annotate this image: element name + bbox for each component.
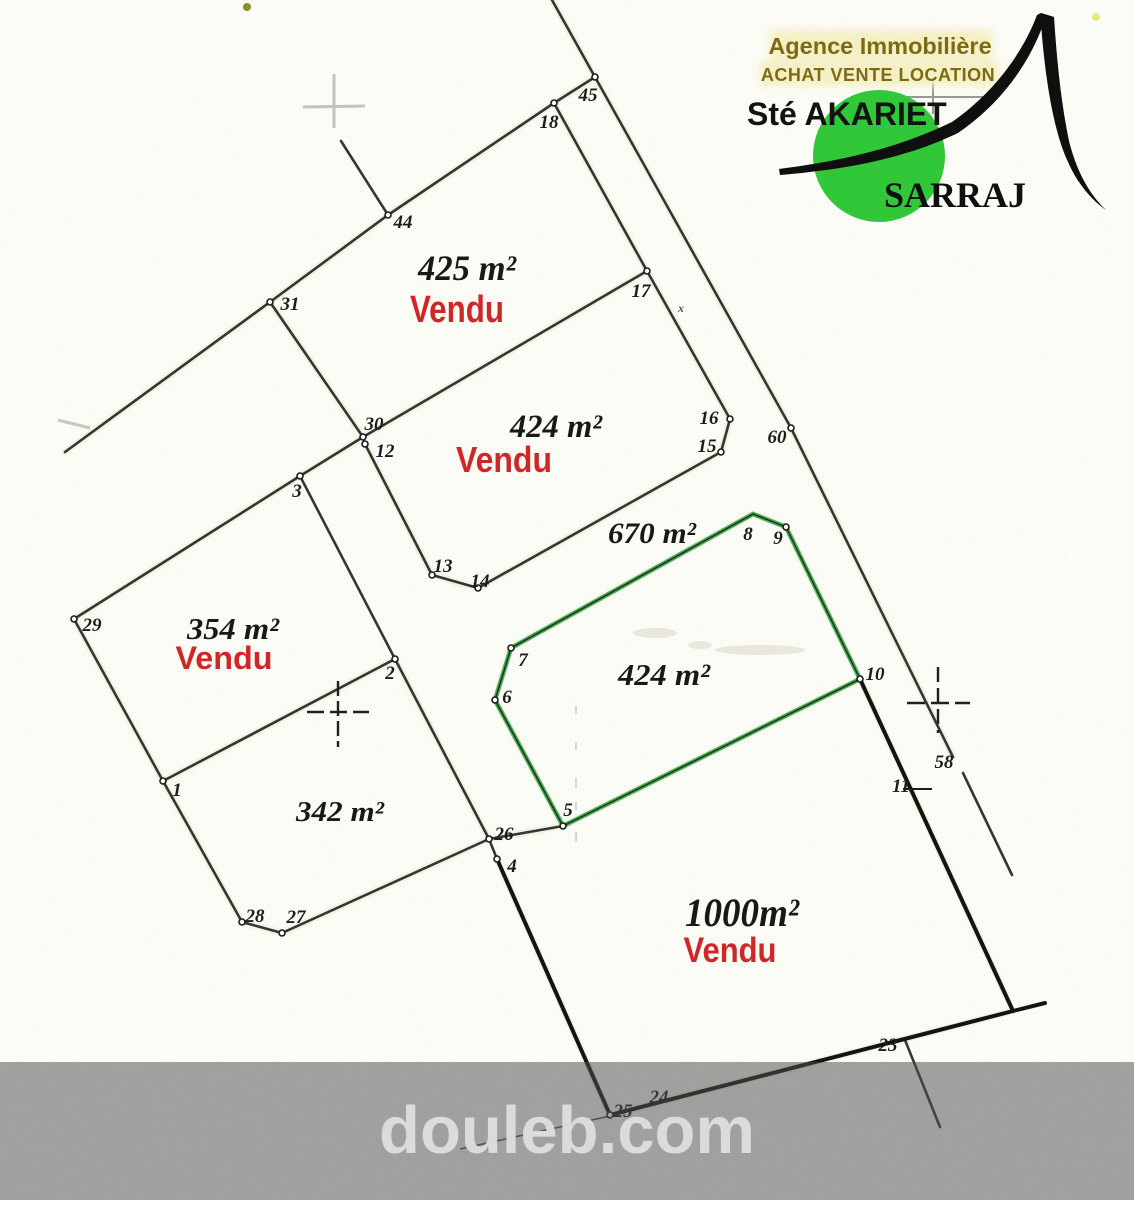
svg-text:douleb.com: douleb.com bbox=[379, 1093, 755, 1168]
